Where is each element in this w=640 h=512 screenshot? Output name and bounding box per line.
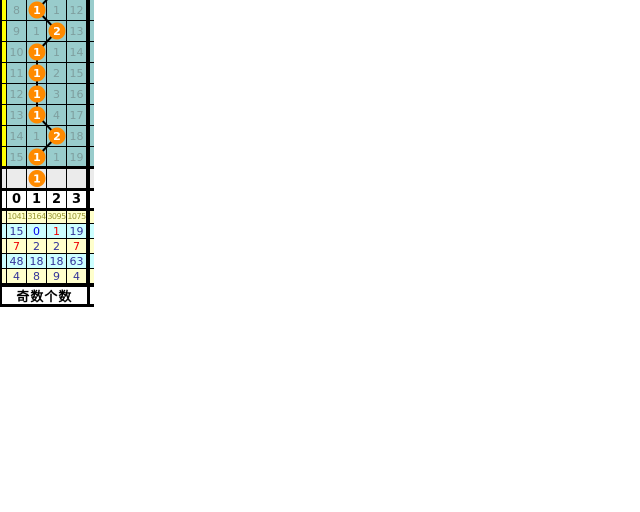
- stats-cell: 4: [67, 269, 87, 284]
- stats-cell: 0: [27, 224, 47, 239]
- stats-cell: 4: [7, 269, 27, 284]
- miss-count: 1: [47, 42, 67, 63]
- miss-count: 4: [47, 105, 67, 126]
- miss-count: 1: [27, 21, 47, 42]
- stats-cell: 1075: [67, 211, 87, 224]
- right-sliver-cell: [90, 21, 94, 42]
- right-sliver-cell: [90, 269, 94, 284]
- right-sliver-cell: [90, 63, 94, 84]
- right-sliver-cell: [90, 126, 94, 147]
- miss-count: 1: [27, 126, 47, 147]
- miss-count: 19: [67, 147, 87, 168]
- stats-cell: 19: [67, 224, 87, 239]
- section-title: 奇数个数: [2, 287, 87, 304]
- right-sliver-cell: [90, 105, 94, 126]
- stats-cell: 63: [67, 254, 87, 269]
- stats-cell: 8: [27, 269, 47, 284]
- separator-line: [0, 304, 94, 307]
- prediction-cell: [67, 169, 87, 188]
- miss-count: 1: [47, 147, 67, 168]
- miss-count: 14: [67, 42, 87, 63]
- miss-count: 14: [7, 126, 27, 147]
- prediction-cell: [7, 169, 27, 188]
- miss-count: 17: [67, 105, 87, 126]
- stats-cell: 18: [27, 254, 47, 269]
- lottery-trend-chart: 奇数个数 81129113101141121512316134171411815…: [0, 0, 94, 308]
- right-sliver-cell: [90, 224, 94, 239]
- right-sliver-cell: [90, 287, 94, 304]
- separator-line: [0, 166, 94, 169]
- stats-cell: 18: [47, 254, 67, 269]
- miss-count: 9: [7, 21, 27, 42]
- trend-cell: [27, 147, 47, 168]
- stats-cell: 15: [7, 224, 27, 239]
- right-sliver-cell: [90, 191, 94, 208]
- trend-cell: [47, 21, 67, 42]
- stats-cell: 1041: [7, 211, 27, 224]
- miss-count: 15: [7, 147, 27, 168]
- right-sliver-cell: [90, 0, 94, 21]
- stats-cell: 2: [27, 239, 47, 254]
- separator-line: [0, 208, 94, 211]
- right-sliver-cell: [90, 84, 94, 105]
- stats-cell: 7: [67, 239, 87, 254]
- miss-count: 12: [7, 84, 27, 105]
- prediction-cell: [27, 169, 47, 188]
- miss-count: 8: [7, 0, 27, 21]
- trend-cell: [27, 84, 47, 105]
- separator-line: [0, 188, 94, 191]
- stats-cell: 2: [47, 239, 67, 254]
- right-sliver-cell: [90, 254, 94, 269]
- miss-count: 12: [67, 0, 87, 21]
- stats-cell: 3164: [27, 211, 47, 224]
- miss-count: 2: [47, 63, 67, 84]
- miss-count: 13: [67, 21, 87, 42]
- stats-cell: 3095: [47, 211, 67, 224]
- miss-count: 10: [7, 42, 27, 63]
- right-sliver-cell: [90, 147, 94, 168]
- column-header-cell: 1: [27, 191, 47, 208]
- trend-cell: [47, 126, 67, 147]
- right-sliver-cell: [90, 42, 94, 63]
- right-sliver-cell: [90, 169, 94, 188]
- miss-count: 16: [67, 84, 87, 105]
- right-sliver-cell: [90, 211, 94, 224]
- right-sliver-cell: [90, 239, 94, 254]
- right-border: [87, 0, 90, 307]
- miss-count: 1: [47, 0, 67, 21]
- miss-count: 11: [7, 63, 27, 84]
- stats-cell: 9: [47, 269, 67, 284]
- stats-cell: 48: [7, 254, 27, 269]
- miss-count: 3: [47, 84, 67, 105]
- stats-cell: 1: [47, 224, 67, 239]
- page-canvas: 奇数个数 81129113101141121512316134171411815…: [0, 0, 640, 512]
- left-border: [0, 0, 2, 307]
- trend-cell: [27, 105, 47, 126]
- trend-cell: [27, 63, 47, 84]
- column-header-cell: 0: [7, 191, 27, 208]
- separator-line: [0, 284, 94, 287]
- prediction-cell: [47, 169, 67, 188]
- stats-cell: 7: [7, 239, 27, 254]
- miss-count: 13: [7, 105, 27, 126]
- miss-count: 18: [67, 126, 87, 147]
- trend-cell: [27, 0, 47, 21]
- miss-count: 15: [67, 63, 87, 84]
- column-header-cell: 3: [67, 191, 87, 208]
- column-header-cell: 2: [47, 191, 67, 208]
- trend-cell: [27, 42, 47, 63]
